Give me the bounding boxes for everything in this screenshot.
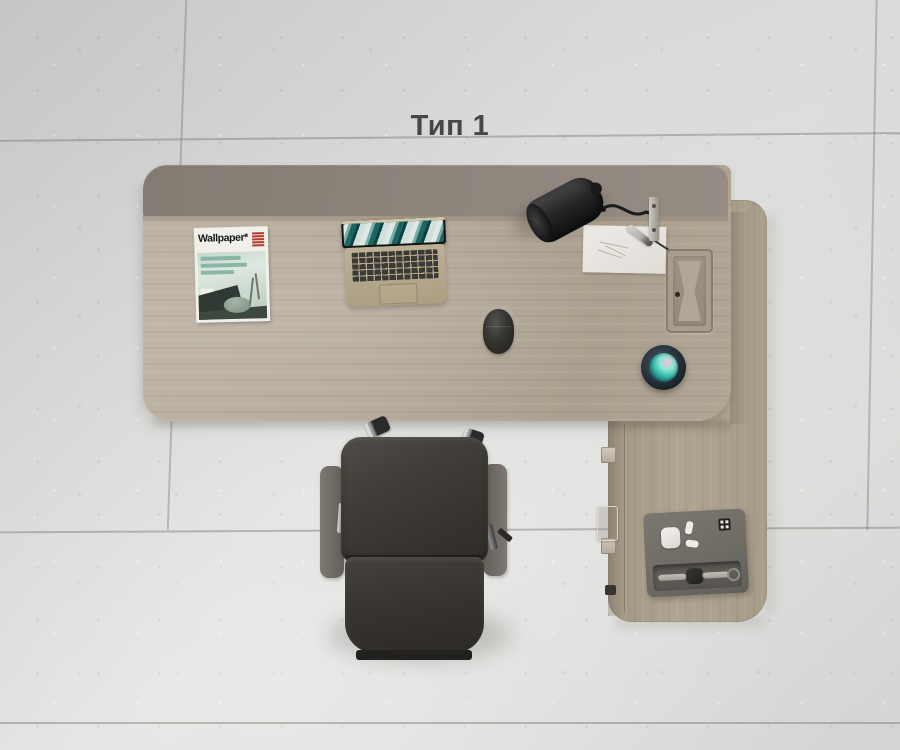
chair-backrest <box>341 437 488 563</box>
bracket-screw <box>652 204 656 208</box>
bracket-screw <box>652 228 656 232</box>
grommet-cutout <box>678 261 701 321</box>
computer-mouse <box>483 309 514 354</box>
chair-seat <box>345 557 484 653</box>
lamp-mount-bracket <box>649 197 659 241</box>
grommet-plate <box>673 256 706 326</box>
configuration-title: Тип 1 <box>350 110 550 143</box>
product-render-scene: Wallpaper* <box>0 0 900 750</box>
chair-base <box>356 650 472 660</box>
mouse-seam <box>486 326 511 327</box>
speaker-glow <box>649 353 678 382</box>
cable-hole <box>675 292 680 297</box>
smart-speaker <box>641 345 686 390</box>
cable-grommet <box>666 249 713 333</box>
